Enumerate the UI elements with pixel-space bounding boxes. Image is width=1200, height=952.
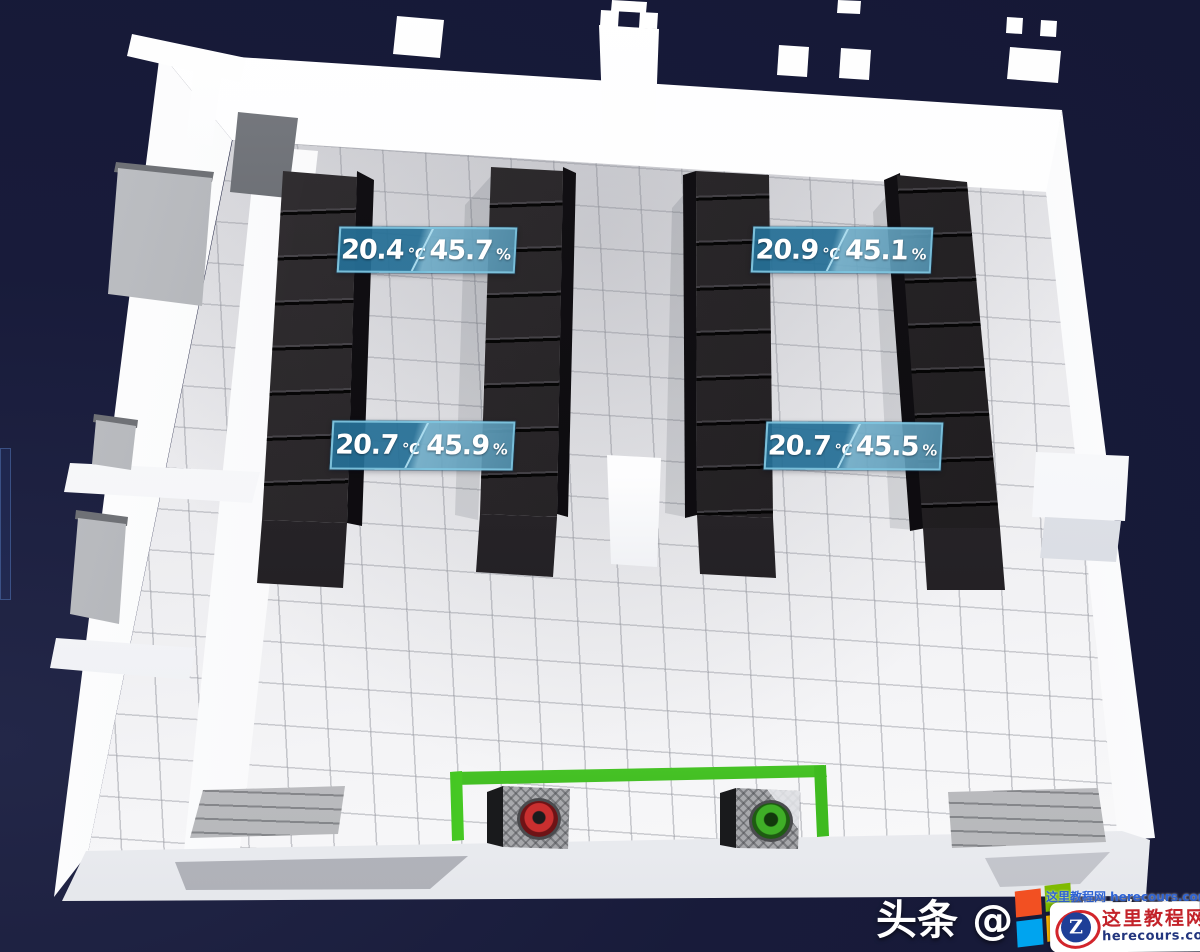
- wall-left: [0, 0, 1200, 952]
- watermark-prefix: 头条 @: [876, 886, 1013, 946]
- humidity-value: 45.1: [844, 235, 908, 266]
- wall-column-cap: [0, 0, 1200, 952]
- site-name: 这里教程网: [1102, 909, 1200, 931]
- wall-corner-piece-vertical: [0, 0, 1200, 952]
- site-logo-letter: Z: [1061, 912, 1091, 942]
- server-rack-row-3-front: [0, 0, 1200, 952]
- wall-column-cap: [0, 0, 1200, 952]
- sensor-label-left-top[interactable]: 20.4 ℃ 45.7 %: [337, 227, 518, 274]
- partition-wall-2: [0, 0, 1200, 952]
- door-panel-lower: [0, 0, 1200, 952]
- wall-top: [0, 0, 1200, 952]
- humidity-section: 45.5 %: [852, 424, 941, 468]
- rack-shadow: [0, 0, 1200, 952]
- server-rack-row-3-side: [0, 0, 1200, 952]
- sensor-label-left-bottom[interactable]: 20.7 ℃ 45.9 %: [330, 421, 516, 471]
- green-boundary-top: [0, 0, 1200, 952]
- floor-shading-overlay: [0, 0, 1200, 952]
- pillar-top-tab: [0, 0, 1200, 952]
- sensor-label-right-bottom[interactable]: 20.7 ℃ 45.5 %: [764, 422, 944, 471]
- floor-grate-right: [0, 0, 1200, 952]
- green-boundary-left: [0, 0, 1200, 952]
- humidity-value: 45.7: [429, 235, 493, 266]
- pillar-top-tab: [0, 0, 1200, 952]
- temperature-value: 20.4: [340, 234, 404, 265]
- site-badge-texts: 这里教程网 herecours.com: [1102, 909, 1200, 945]
- server-rack-row-1-front: [0, 0, 1200, 952]
- fan-hub-red: [517, 798, 561, 840]
- door-panel-middle: [0, 0, 1200, 952]
- temperature-value: 20.7: [334, 430, 398, 461]
- datacenter-3d-view: 20.4 ℃ 45.7 % 20.9 ℃ 45.1 % 20.7 ℃ 45.9 …: [0, 0, 1200, 952]
- windows-logo-red-square: [1015, 888, 1042, 917]
- humidity-section: 45.1 %: [841, 229, 931, 271]
- site-badge: Z 这里教程网 herecours.com: [1050, 901, 1200, 952]
- pillar-top-tab: [0, 0, 1200, 952]
- humidity-unit: %: [922, 441, 938, 459]
- server-rack-row-3: [0, 0, 1200, 952]
- wall-bottom: [0, 0, 1200, 952]
- temperature-value: 20.7: [767, 430, 831, 461]
- floor-grate-left: [0, 0, 1200, 952]
- rack-shadow: [0, 0, 1200, 952]
- fan-hub-green: [749, 800, 793, 842]
- humidity-value: 45.5: [855, 431, 919, 462]
- temperature-value: 20.9: [755, 234, 819, 265]
- door-lintel: [0, 0, 1200, 952]
- wall-column-box-east: [0, 0, 1200, 952]
- fan-unit-left-side: [0, 0, 1200, 952]
- center-pillar: [0, 0, 1200, 952]
- wall-inner-left: [0, 0, 1200, 952]
- server-rack-row-4: [0, 0, 1200, 952]
- offscreen-panel-edge: [0, 448, 11, 600]
- site-logo-icon: Z: [1054, 904, 1100, 950]
- green-boundary-right: [0, 0, 1200, 952]
- fan-unit-left: [0, 0, 1200, 952]
- door-panel-upper: [0, 0, 1200, 952]
- door-lintel: [0, 0, 1200, 952]
- server-rack-row-4-front: [0, 0, 1200, 952]
- wall-corner-piece-horizontal: [0, 0, 1200, 952]
- room-floor-tiles: [0, 0, 1200, 952]
- pillar-top-tab: [0, 0, 1200, 952]
- wall-column-box-northeast: [0, 0, 1200, 952]
- wall-column-box-east-lower: [0, 0, 1200, 952]
- humidity-unit: %: [492, 440, 508, 458]
- server-rack-row-4-side: [0, 0, 1200, 952]
- humidity-unit: %: [911, 245, 927, 263]
- door-lintel: [0, 0, 1200, 952]
- wall-column-cap: [0, 0, 1200, 952]
- server-rack-row-1: [0, 0, 1200, 952]
- server-rack-row-1-side: [0, 0, 1200, 952]
- fan-unit-right: [0, 0, 1200, 952]
- server-rack-row-2: [0, 0, 1200, 952]
- server-rack-row-2-side: [0, 0, 1200, 952]
- partition-wall-1: [0, 0, 1200, 952]
- wall-column-cap: [0, 0, 1200, 952]
- doorway-opening: [0, 0, 1200, 952]
- wall-base-shadow: [0, 0, 1200, 952]
- temperature-section: 20.7 ℃: [332, 423, 424, 468]
- server-rack-row-2-front: [0, 0, 1200, 952]
- fan-unit-right-side: [0, 0, 1200, 952]
- humidity-value: 45.9: [426, 430, 490, 461]
- humidity-section: 45.9 %: [421, 423, 513, 468]
- wall-right: [0, 0, 1200, 952]
- rack-shadow: [0, 0, 1200, 952]
- wall-base-shadow: [0, 0, 1200, 952]
- windows-logo-blue-square: [1017, 918, 1044, 947]
- wall-pillar-north: [0, 0, 1200, 952]
- humidity-unit: %: [496, 245, 512, 263]
- site-url: herecours.com: [1102, 929, 1200, 944]
- rack-shadow: [0, 0, 1200, 952]
- wall-column-cap: [0, 0, 1200, 952]
- humidity-section: 45.7 %: [426, 229, 515, 271]
- sensor-label-right-top[interactable]: 20.9 ℃ 45.1 %: [751, 227, 934, 274]
